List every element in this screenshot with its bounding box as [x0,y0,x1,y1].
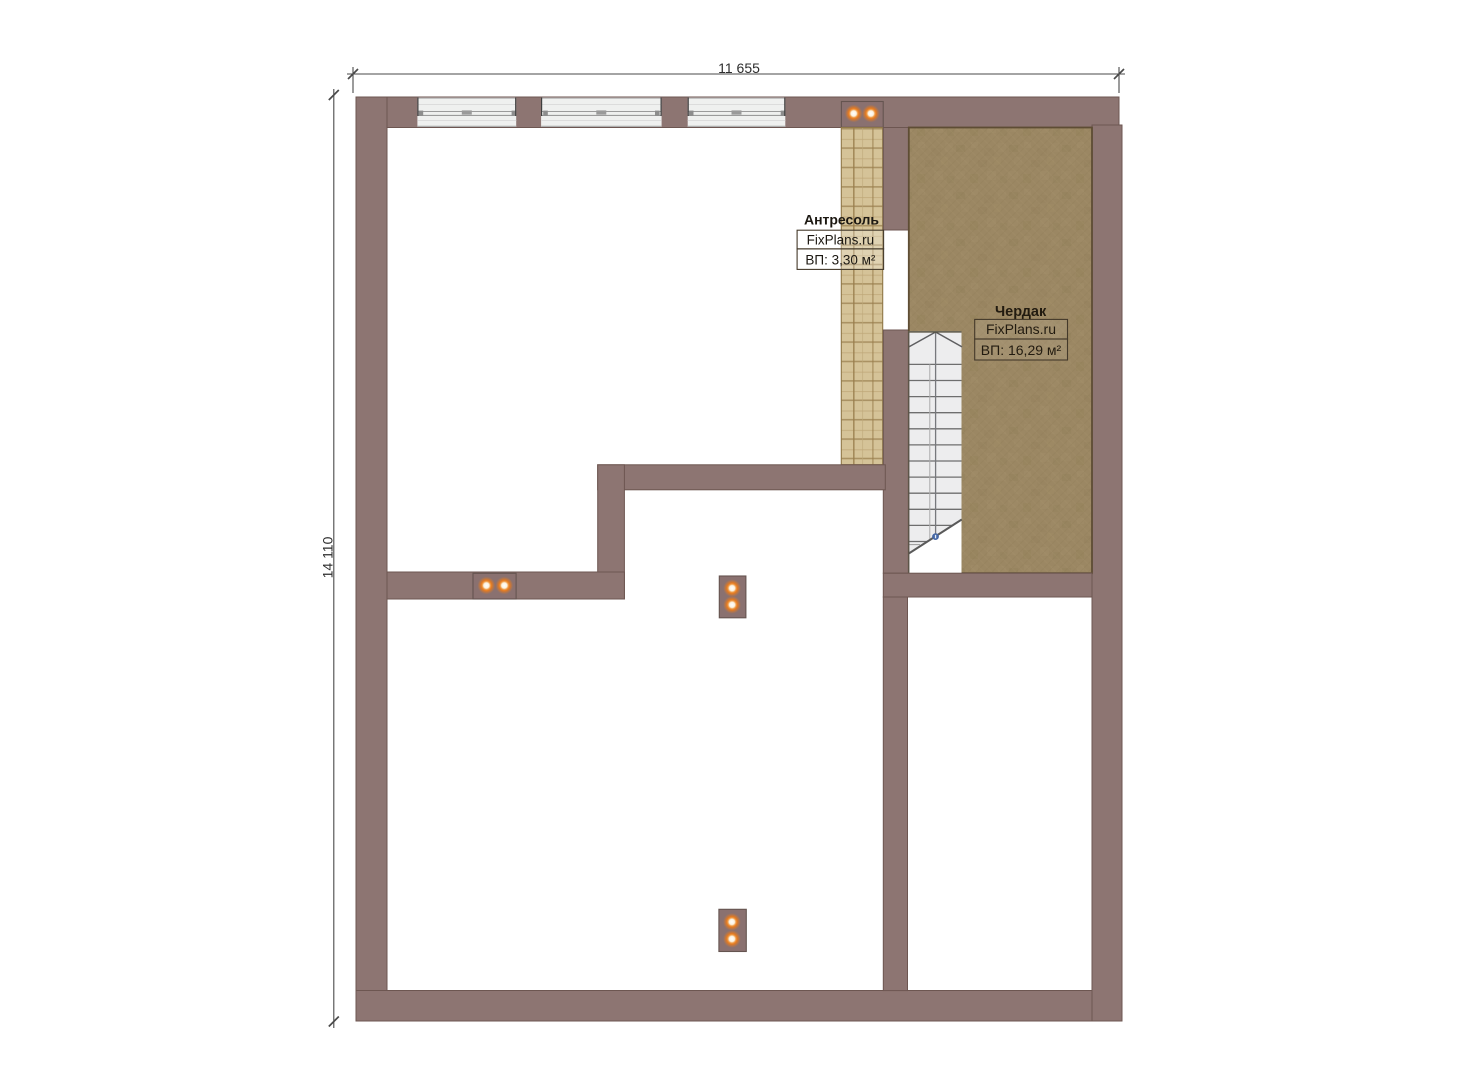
svg-text:14 110: 14 110 [320,536,336,578]
svg-text:ВП: 16,29 м²: ВП: 16,29 м² [981,342,1062,358]
svg-text:Чердак: Чердак [995,304,1047,320]
svg-text:Антресоль: Антресоль [804,212,879,228]
svg-text:11 655: 11 655 [718,60,760,76]
svg-text:FixPlans.ru: FixPlans.ru [986,321,1056,337]
svg-text:ВП: 3,30 м²: ВП: 3,30 м² [805,252,876,267]
svg-text:FixPlans.ru: FixPlans.ru [807,232,875,247]
